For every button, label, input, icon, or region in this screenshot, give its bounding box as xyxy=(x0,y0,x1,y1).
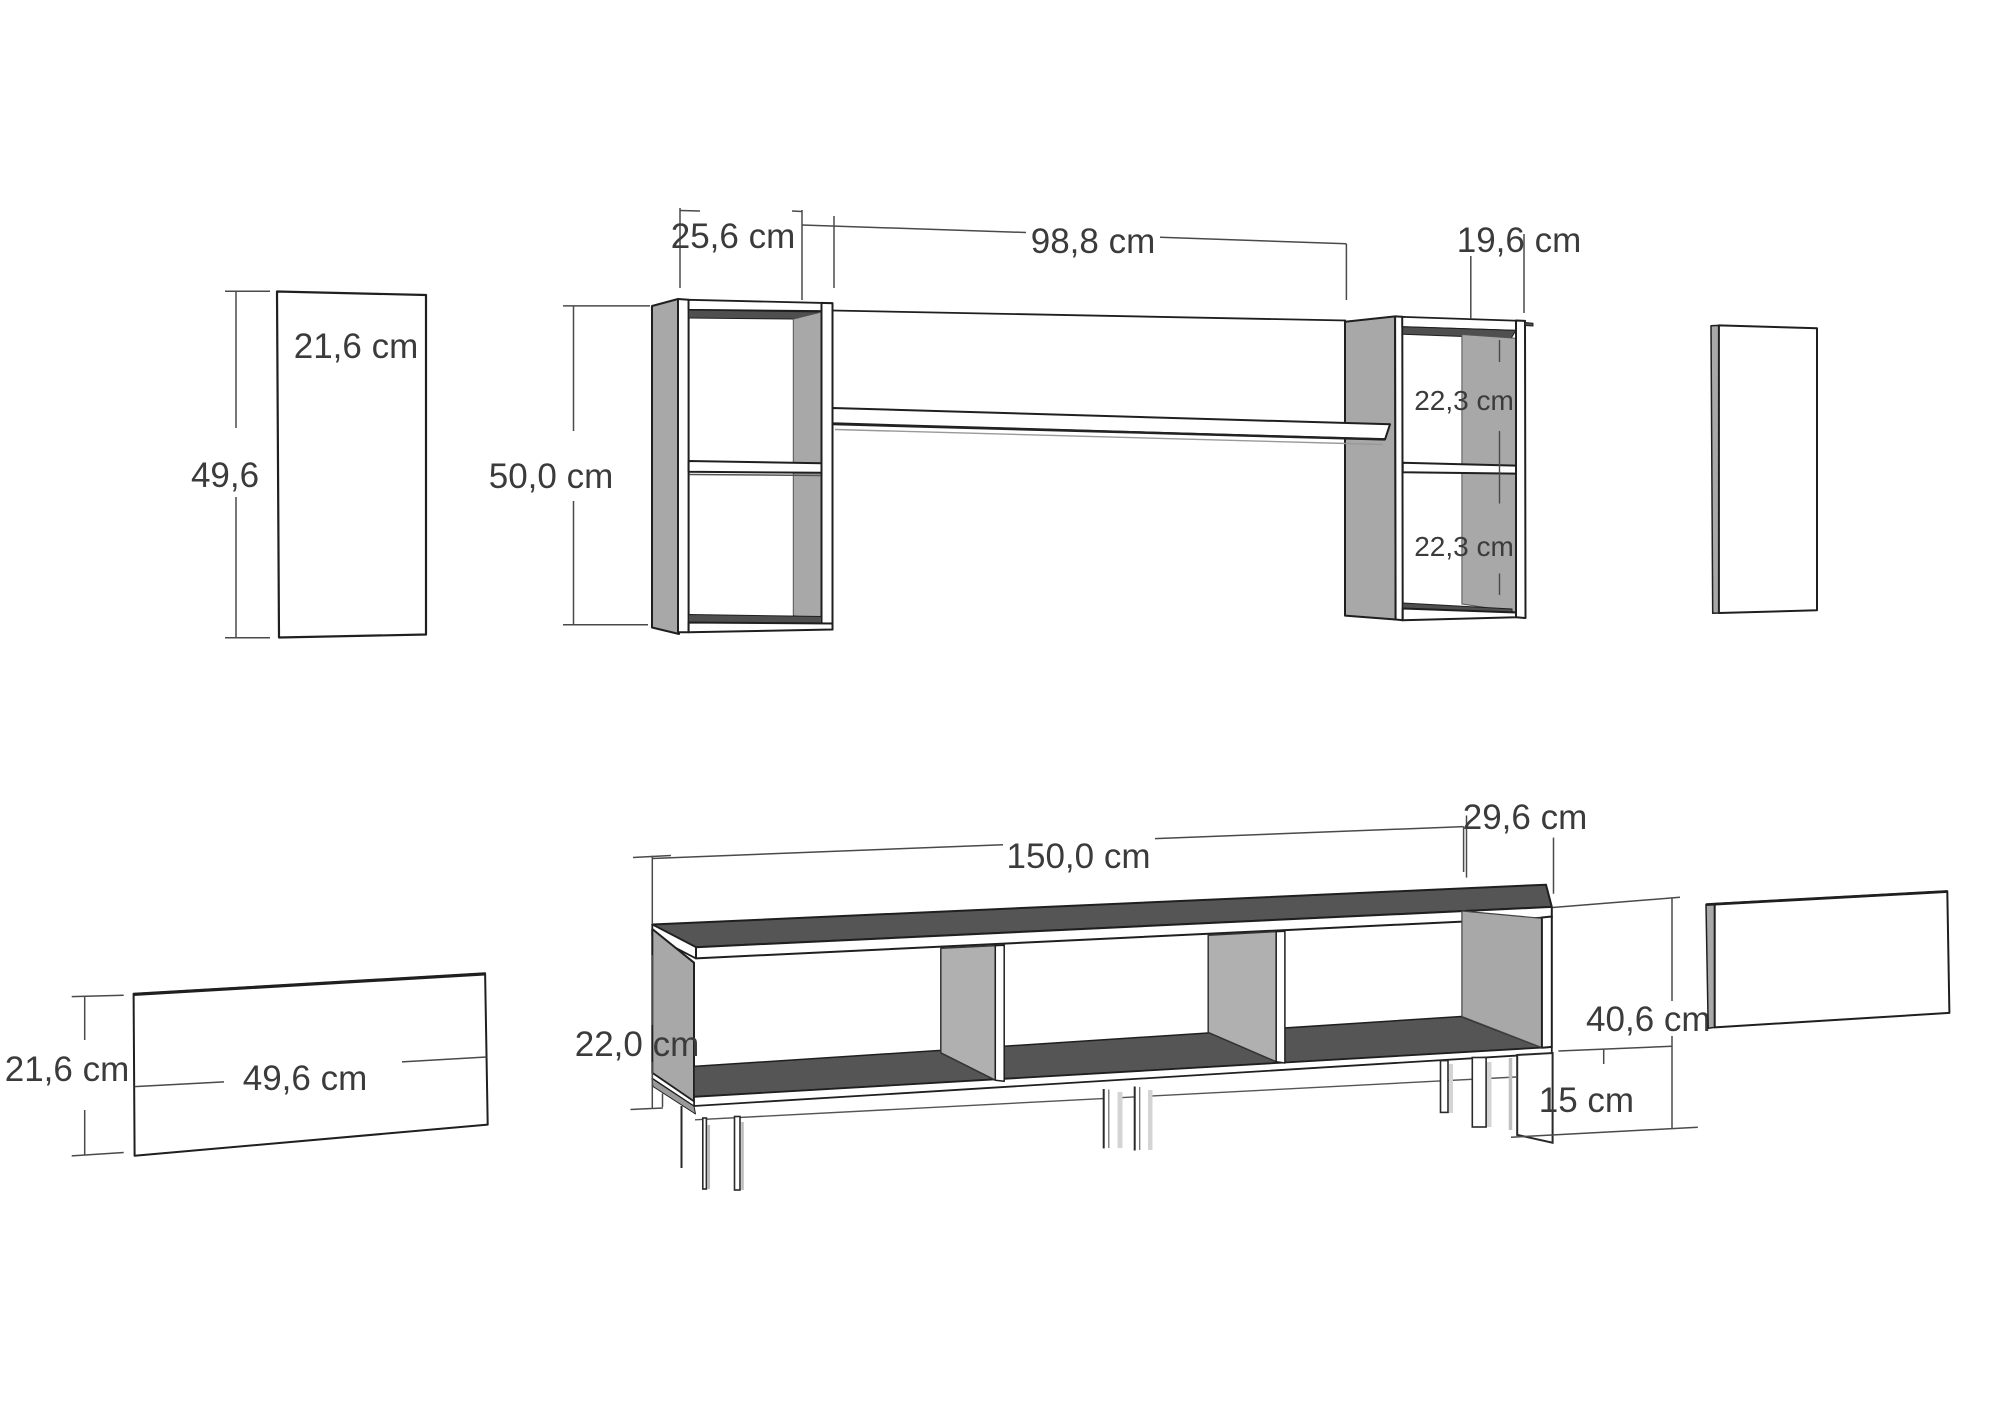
svg-text:25,6 cm: 25,6 cm xyxy=(671,217,796,256)
svg-text:49,6 cm: 49,6 cm xyxy=(243,1059,368,1098)
svg-text:21,6 cm: 21,6 cm xyxy=(5,1050,130,1089)
svg-text:22,0 cm: 22,0 cm xyxy=(575,1025,700,1064)
svg-text:19,6 cm: 19,6 cm xyxy=(1457,221,1582,260)
svg-text:22,3 cm: 22,3 cm xyxy=(1414,531,1514,562)
svg-text:21,6 cm: 21,6 cm xyxy=(294,327,419,366)
svg-text:29,6 cm: 29,6 cm xyxy=(1463,798,1588,837)
svg-text:98,8 cm: 98,8 cm xyxy=(1031,222,1156,261)
svg-text:22,3 cm: 22,3 cm xyxy=(1414,385,1514,416)
svg-text:50,0 cm: 50,0 cm xyxy=(489,457,614,496)
svg-text:150,0 cm: 150,0 cm xyxy=(1007,837,1151,876)
svg-text:49,6: 49,6 xyxy=(191,456,259,495)
svg-text:15 cm: 15 cm xyxy=(1539,1081,1634,1120)
svg-text:40,6 cm: 40,6 cm xyxy=(1586,1000,1711,1039)
